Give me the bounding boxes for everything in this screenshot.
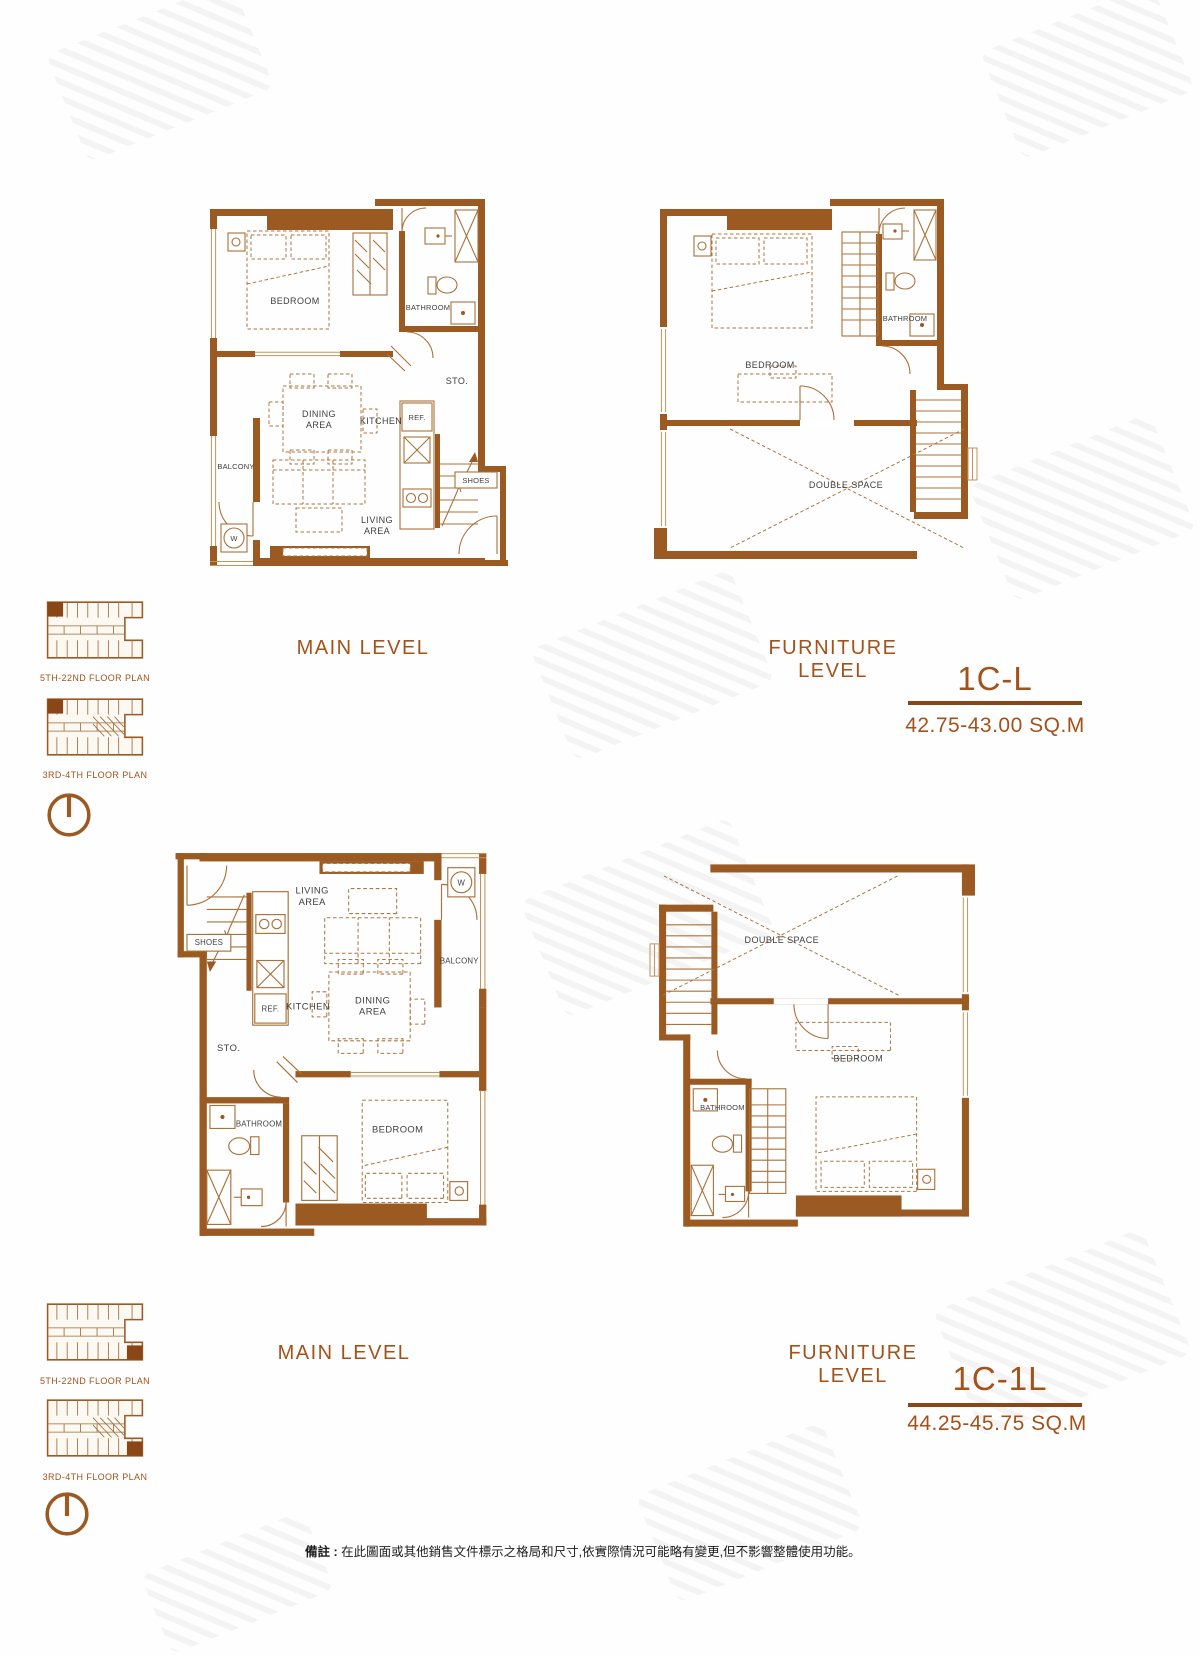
keyplan-label-3rd-4th: 3RD-4TH FLOOR PLAN — [35, 770, 155, 780]
keyplan-label-3rd-4th: 3RD-4TH FLOOR PLAN — [35, 1472, 155, 1482]
floorplan-main-level-1c1l: BEDROOM BATHROOM STO. DINING AREA KITCHE… — [187, 848, 502, 1242]
dining-label: DINING — [302, 409, 336, 419]
washer-label: W — [458, 878, 466, 887]
bedroom-label: BEDROOM — [372, 1125, 423, 1135]
watermark — [980, 0, 1195, 159]
watermark — [140, 1510, 334, 1654]
keyplan-3rd-4th-bottom — [43, 1394, 147, 1462]
dining-label: AREA — [359, 1007, 387, 1017]
unit-highlight — [127, 1441, 142, 1455]
note-text: 在此圖面或其他銷售文件標示之格局和尺寸,依實際情況可能略有變更,但不影響整體使用… — [341, 1545, 860, 1559]
floorplan-sheet: { "labels": { "main_level": "MAIN LEVEL"… — [0, 0, 1200, 1646]
keyplan-5th-22nd-bottom — [43, 1298, 147, 1366]
double-space-label: DOUBLE SPACE — [809, 480, 883, 490]
unit-area-1c1l: 44.25-45.75 SQ.M — [892, 1412, 1102, 1436]
floorplan-furniture-level-1cl: BEDROOM BATHROOM DOUBLE SPACE — [652, 196, 977, 568]
disclaimer-note: 備註 : 在此圖面或其他銷售文件標示之格局和尺寸,依實際情況可能略有變更,但不影… — [305, 1541, 861, 1560]
north-compass-icon — [43, 1490, 91, 1538]
unit-highlight — [48, 699, 63, 713]
watermark — [969, 413, 1197, 602]
shoes-label: SHOES — [462, 476, 489, 485]
keyplan-5th-22nd-top — [43, 596, 147, 664]
floorplan-main-level-1cl: BEDROOM BATHROOM STO. DINING AREA KITCHE… — [195, 196, 497, 568]
dining-label: DINING — [355, 995, 390, 1005]
bedroom-label: BEDROOM — [270, 296, 319, 306]
kitchen-label: KITCHEN — [360, 416, 402, 426]
fridge-label: REF. — [408, 413, 425, 422]
floorplan-furniture-level-1c1l: BEDROOM BATHROOM DOUBLE SPACE — [650, 845, 977, 1240]
keyplan-label-5th-22nd: 5TH-22ND FLOOR PLAN — [35, 1376, 155, 1386]
bathroom-label: BATHROOM — [883, 314, 927, 323]
unit-divider — [908, 701, 1082, 705]
main-level-title-bottom: MAIN LEVEL — [244, 1342, 444, 1365]
living-label: AREA — [364, 526, 390, 536]
note-prefix: 備註 : — [305, 1545, 338, 1559]
north-compass-icon — [45, 791, 93, 839]
keyplan-label-5th-22nd: 5TH-22ND FLOOR PLAN — [35, 673, 155, 683]
unit-highlight — [127, 1345, 142, 1359]
main-level-title-top: MAIN LEVEL — [263, 637, 463, 660]
dining-label: AREA — [306, 420, 332, 430]
shoes-label: SHOES — [195, 938, 223, 947]
bathroom-label: BATHROOM — [406, 303, 450, 312]
living-label: LIVING — [296, 886, 329, 896]
watermark — [636, 1422, 865, 1604]
balcony-label: BALCONY — [217, 462, 254, 471]
watermark — [46, 0, 275, 162]
storage-label: STO. — [217, 1043, 240, 1053]
kitchen-label: KITCHEN — [286, 1002, 330, 1012]
keyplan-3rd-4th-top — [43, 693, 147, 761]
bedroom-label: BEDROOM — [833, 1054, 883, 1064]
unit-code-1cl: 1C-L — [895, 660, 1095, 698]
unit-highlight — [48, 602, 63, 616]
bedroom-label: BEDROOM — [745, 360, 794, 370]
living-label: LIVING — [361, 515, 393, 525]
unit-area-1cl: 42.75-43.00 SQ.M — [890, 714, 1100, 738]
unit-code-1c1l: 1C-1L — [900, 1360, 1100, 1398]
room-labels: BEDROOM BATHROOM DOUBLE SPACE — [700, 935, 883, 1112]
washer-label: W — [230, 534, 238, 543]
fridge-label: REF. — [262, 1005, 280, 1014]
living-label: AREA — [299, 897, 327, 907]
storage-label: STO. — [446, 376, 468, 386]
double-space-label: DOUBLE SPACE — [745, 935, 820, 945]
bathroom-label: BATHROOM — [700, 1103, 745, 1112]
balcony-label: BALCONY — [440, 957, 479, 966]
bathroom-label: BATHROOM — [236, 1119, 282, 1128]
unit-divider — [908, 1403, 1082, 1407]
